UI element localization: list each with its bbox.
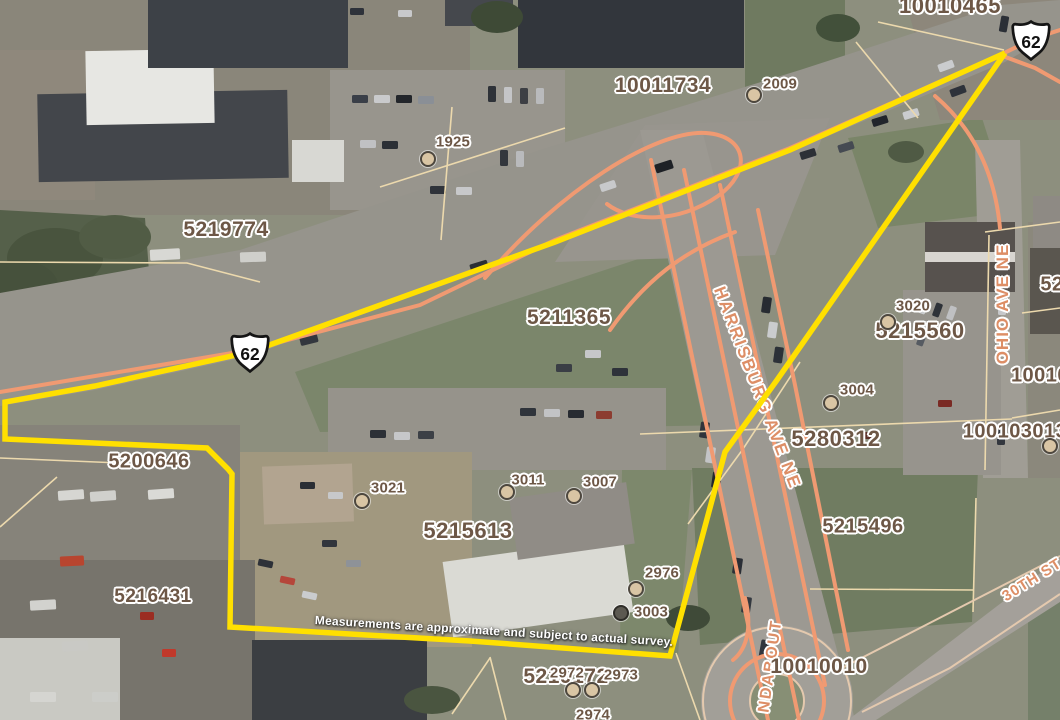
us-route-62-shield: 62 <box>227 332 273 379</box>
address-number-label: 2974 <box>576 707 610 720</box>
route-shield-icon: 62 <box>227 332 273 374</box>
route-shield-icon: 62 <box>1008 20 1054 62</box>
parcel-number-label: 5216431 <box>114 586 191 608</box>
address-number-label: 3021 <box>371 480 405 497</box>
parcel-number-label: 5280312 <box>791 426 880 452</box>
svg-text:62: 62 <box>240 344 259 364</box>
parcel-number-label: 5219774 <box>183 218 268 242</box>
address-point-dot <box>354 493 370 509</box>
parcel-number-label: 10010465 <box>899 0 1001 19</box>
parcel-number-label: 5200646 <box>108 451 189 474</box>
address-point-dot <box>566 488 582 504</box>
parcel-number-label: 10011734 <box>615 74 711 98</box>
address-number-label: 3003 <box>634 604 668 621</box>
address-point-dot <box>613 605 629 621</box>
address-number-label: 2973 <box>604 667 638 684</box>
address-point-dot <box>628 581 644 597</box>
address-point-dot <box>1042 438 1058 454</box>
address-number-label: 2976 <box>645 565 679 582</box>
address-number-label: 1925 <box>436 134 470 151</box>
address-point-dot <box>584 682 600 698</box>
parcel-number-label: 10010 <box>1011 365 1060 388</box>
svg-text:62: 62 <box>1021 32 1040 52</box>
address-point-dot <box>823 395 839 411</box>
address-point-dot <box>746 87 762 103</box>
parcel-number-label: 5211365 <box>527 306 611 330</box>
parcel-number-label: 52 <box>1040 274 1060 297</box>
address-point-dot <box>499 484 515 500</box>
address-point-dot <box>880 314 896 330</box>
address-number-label: 3004 <box>840 382 874 399</box>
address-point-dot <box>420 151 436 167</box>
address-number-label: 2972 <box>550 665 584 682</box>
address-number-label: 3007 <box>583 474 617 491</box>
address-point-dot <box>565 682 581 698</box>
us-route-62-shield: 62 <box>1008 20 1054 67</box>
parcel-number-label: 10010010 <box>770 655 867 679</box>
gis-aerial-map-canvas[interactable]: HARRISBURG AVE NEOHIO AVE NENDABOUT30TH … <box>0 0 1060 720</box>
parcel-labels-layer: 1001046510011734521977452113655215560528… <box>0 0 1060 720</box>
address-number-label: 2009 <box>763 76 797 93</box>
parcel-number-label: 5215496 <box>822 516 903 539</box>
address-number-label: 3011 <box>511 472 544 489</box>
parcel-number-label: 5215613 <box>423 518 512 544</box>
address-number-label: 3020 <box>896 298 930 315</box>
